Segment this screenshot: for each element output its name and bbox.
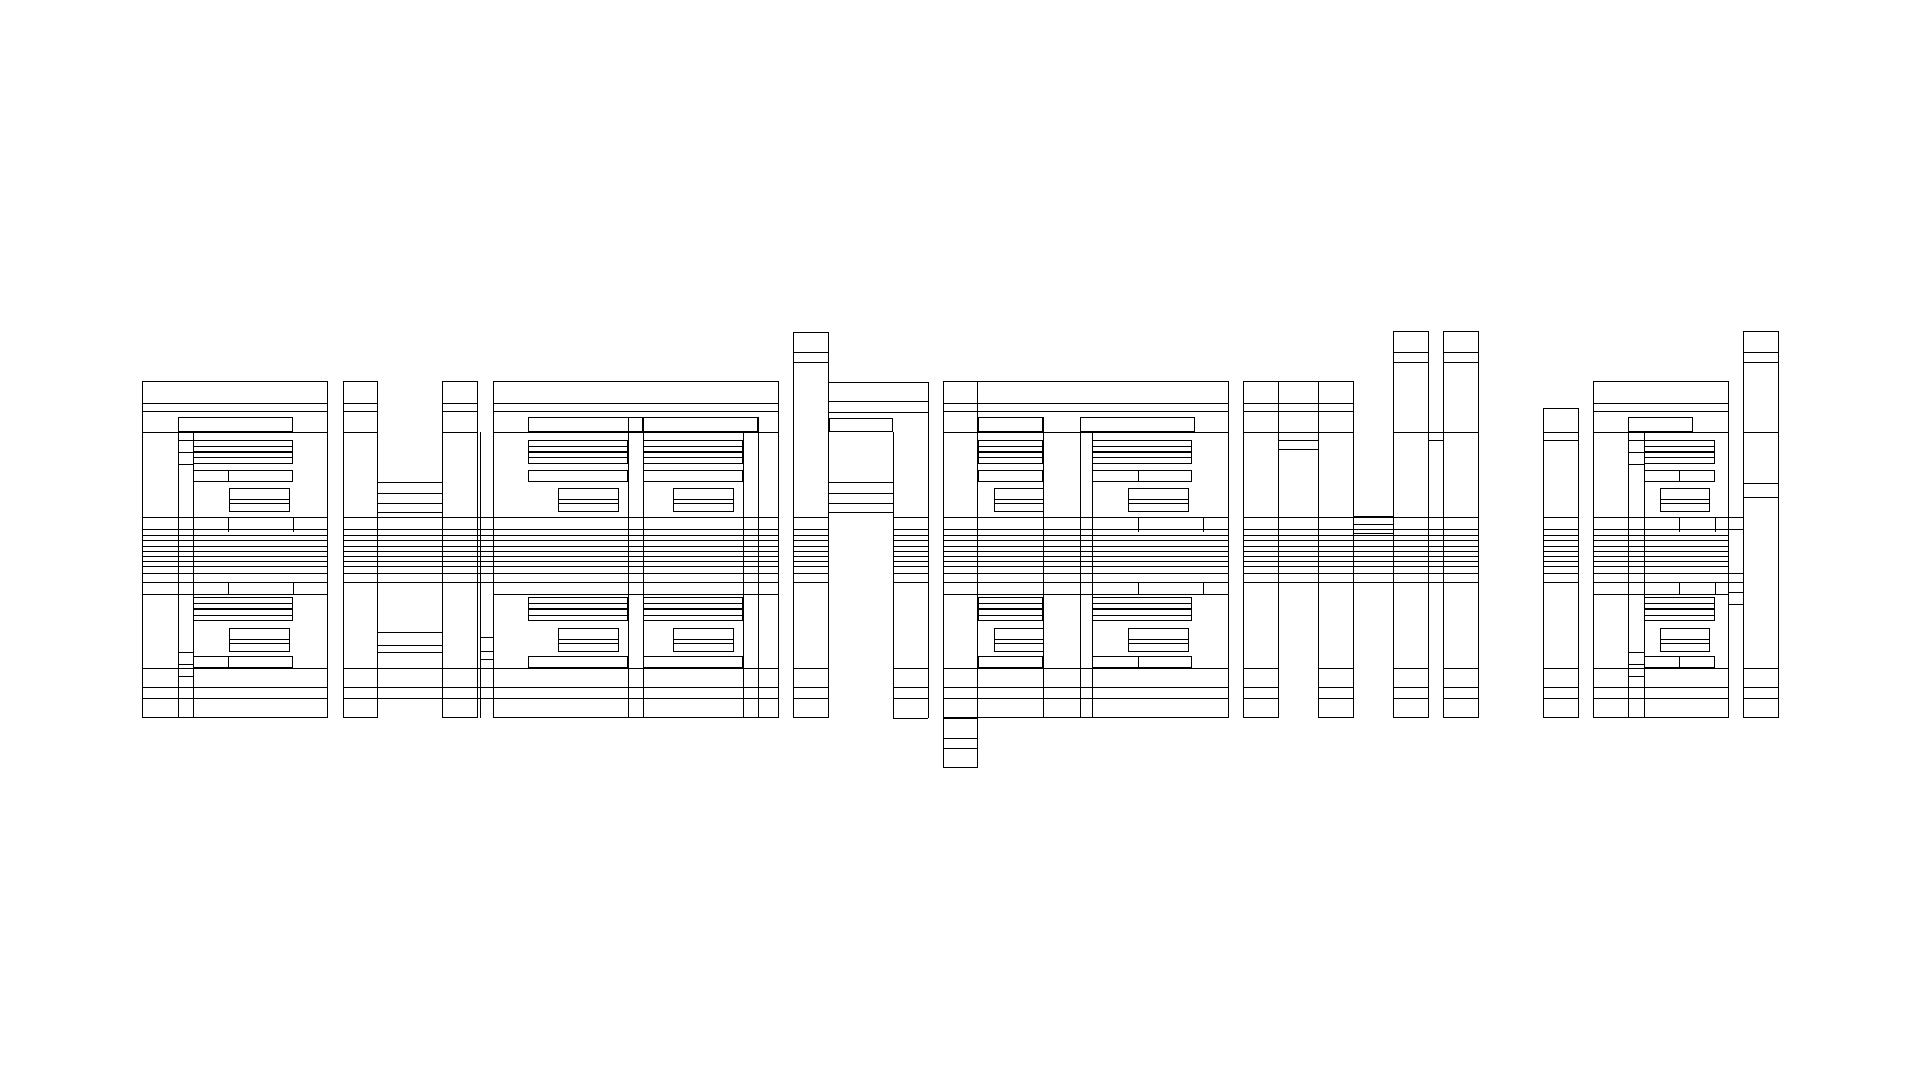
outline-rect [528, 417, 643, 432]
ascender-cells-line [1393, 362, 1429, 363]
mid-stripes-line [1243, 556, 1479, 557]
mid-stripes-line [1543, 529, 1579, 530]
outline-rect [978, 417, 1043, 432]
outline-rect [1393, 331, 1429, 718]
top-band-line [142, 403, 328, 404]
mid-stripes-line [943, 529, 1229, 530]
bottom-band-line [943, 687, 1229, 688]
h-line [558, 499, 619, 500]
mid-stripes-line [142, 529, 328, 530]
outline-rect [558, 488, 619, 512]
outline-rect [673, 488, 734, 512]
h-line [528, 457, 628, 458]
mid-stripes-line [943, 517, 1229, 518]
h-line [1628, 440, 1644, 441]
h-line [178, 452, 193, 453]
bottom-band-line [893, 668, 928, 669]
bottom-band-line [893, 687, 928, 688]
h-line [943, 748, 978, 749]
mid-stripes-line [343, 529, 779, 530]
mid-stripes-line [1243, 551, 1479, 552]
bottom-band-line [142, 668, 328, 669]
v-line [1138, 470, 1139, 482]
h-line [1660, 499, 1710, 500]
outline-rect [643, 470, 743, 482]
mid-stripes-line [1593, 551, 1729, 552]
bottom-band-line [1243, 698, 1279, 699]
h-line [994, 503, 1044, 504]
bottom-band-line [893, 698, 928, 699]
outline-rect [793, 332, 829, 718]
h-line [643, 446, 743, 447]
h-line [193, 603, 293, 604]
h-line [480, 637, 493, 638]
outline-rect [1443, 331, 1479, 718]
bottom-band-line [1543, 668, 1579, 669]
ascender-cells-line [793, 362, 829, 363]
mid-stripes-line [943, 556, 1229, 557]
mid-stripes-line [343, 540, 779, 541]
v-line [928, 382, 929, 718]
h-line [1644, 446, 1715, 447]
h-line [178, 652, 193, 653]
bottom-band-line [1593, 698, 1729, 699]
outline-rect [1743, 331, 1779, 718]
bottom-band-line [343, 668, 493, 669]
v-line [228, 470, 229, 482]
outline-rect [994, 488, 1044, 512]
arch-cells-line [829, 512, 893, 513]
v-line [893, 432, 894, 718]
mid-stripes-line [893, 551, 928, 552]
mid-stripes-line [1543, 561, 1579, 562]
h-line [1092, 457, 1192, 458]
mid-stripes-line [1593, 556, 1729, 557]
v-line [1715, 582, 1716, 594]
h-line [893, 718, 928, 719]
top-band-line [943, 432, 1229, 433]
top-band-line [1593, 411, 1729, 412]
v-line [1679, 656, 1680, 668]
outline-rect [178, 417, 293, 432]
v-line [1203, 582, 1204, 594]
bottom-band-line [943, 698, 1229, 699]
top-band-line [442, 432, 478, 433]
h-line [829, 412, 928, 413]
ascender-cells-line [1443, 352, 1479, 353]
top-band-line [1243, 432, 1354, 433]
h-line [643, 603, 743, 604]
v-line [743, 432, 744, 718]
h-line [1729, 573, 1743, 574]
h-line [378, 632, 442, 633]
mid-stripes-line [1243, 540, 1479, 541]
mid-stripes-line [793, 517, 829, 518]
h-line [1660, 643, 1710, 644]
outline-rect [193, 656, 293, 668]
outline-rect [193, 470, 293, 482]
outline-rect [943, 381, 978, 768]
outline-rect [229, 628, 290, 652]
h-line [1743, 483, 1779, 484]
bottom-band-line [343, 687, 493, 688]
top-band-line [442, 411, 478, 412]
mid-stripes-line [142, 535, 328, 536]
h-line [193, 446, 293, 447]
bottom-band-line [1318, 687, 1354, 688]
h-line [643, 457, 743, 458]
mid-stripes-line [1243, 561, 1479, 562]
h-line [1354, 524, 1393, 525]
h-line [1128, 643, 1189, 644]
outline-rect [829, 418, 893, 432]
h-line [480, 651, 493, 652]
v-line [758, 417, 759, 718]
h-line [1644, 615, 1715, 616]
mid-stripes-line [1593, 566, 1729, 567]
v-line [1679, 582, 1680, 594]
arch-cells-line [378, 512, 442, 513]
v-line [228, 656, 229, 668]
mid-stripes-line [943, 566, 1229, 567]
bottom-band-line [1593, 687, 1729, 688]
v-line [293, 582, 294, 594]
h-line [1729, 582, 1743, 583]
h-line [1092, 446, 1192, 447]
arch-cells-line [829, 493, 893, 494]
h-line [1660, 639, 1710, 640]
h-line [1628, 652, 1644, 653]
bottom-band-line [1443, 698, 1479, 699]
mid-stripes-line [1543, 535, 1579, 536]
mid-stripes-line [1243, 582, 1479, 583]
bottom-band-line [343, 698, 493, 699]
top-band-line [142, 411, 328, 412]
mid-stripes-line [343, 546, 779, 547]
outline-rect [1660, 628, 1710, 652]
mid-stripes-line [793, 535, 829, 536]
mid-stripes-line [893, 546, 928, 547]
arch-cells-line [378, 503, 442, 504]
bottom-band-line [1593, 668, 1729, 669]
v-line [1644, 432, 1645, 718]
h-line [1092, 615, 1192, 616]
outline-rect [1092, 656, 1192, 668]
h-line [1628, 664, 1644, 665]
mid-stripes-line [893, 573, 928, 574]
mid-stripes-line [1593, 517, 1729, 518]
mid-stripes-line [793, 561, 829, 562]
ascender-cells-line [1743, 362, 1779, 363]
mid-stripes-line [343, 551, 779, 552]
mid-stripes-line [793, 573, 829, 574]
outline-rect [643, 656, 743, 668]
bottom-band-line [1318, 698, 1354, 699]
h-line [994, 643, 1044, 644]
v-line [178, 417, 179, 718]
h-line [1593, 594, 1729, 595]
top-band-line [343, 403, 378, 404]
arch-cells-line [378, 482, 442, 483]
mid-stripes-line [893, 517, 928, 518]
h-line [643, 615, 743, 616]
mid-stripes-line [893, 582, 928, 583]
mid-stripes-line [1243, 535, 1479, 536]
h-line [943, 594, 1229, 595]
h-line [1128, 503, 1189, 504]
outline-rect [1644, 452, 1715, 464]
h-line [1743, 497, 1779, 498]
h-line [528, 603, 628, 604]
v-line [228, 582, 229, 594]
mid-stripes-line [1543, 546, 1579, 547]
mid-stripes-line [142, 551, 328, 552]
bottom-band-line [943, 668, 1229, 669]
outline-rect [229, 488, 290, 512]
arch-cells-line [378, 493, 442, 494]
mid-stripes-line [793, 551, 829, 552]
h-line [558, 639, 619, 640]
h-line [178, 440, 193, 441]
h-line [1393, 432, 1429, 433]
mid-stripes-line [142, 540, 328, 541]
outline-rect [643, 417, 758, 432]
mid-stripes-line [893, 561, 928, 562]
mid-stripes-line [943, 535, 1229, 536]
artwork-canvas [0, 0, 1920, 1080]
mid-stripes-line [1243, 529, 1479, 530]
h-line [673, 639, 734, 640]
mid-stripes-line [943, 546, 1229, 547]
h-line [1628, 464, 1644, 465]
bottom-band-line [1543, 687, 1579, 688]
bottom-band-line [493, 698, 779, 699]
mid-stripes-line [1543, 566, 1579, 567]
h-line [673, 503, 734, 504]
h-line [673, 499, 734, 500]
h-line [193, 457, 293, 458]
arch-cells-line [829, 503, 893, 504]
h-line [1354, 533, 1393, 534]
bottom-band-line [1318, 668, 1354, 669]
outline-rect [1128, 488, 1189, 512]
h-line [1660, 503, 1710, 504]
ascender-cells-line [793, 352, 829, 353]
mid-stripes-line [1243, 566, 1479, 567]
h-line [229, 499, 290, 500]
outline-rect [528, 470, 628, 482]
v-line [1092, 432, 1093, 718]
mid-stripes-line [893, 535, 928, 536]
bottom-band-line [493, 687, 779, 688]
h-line [829, 382, 928, 383]
h-line [1729, 592, 1743, 593]
mid-stripes-line [943, 561, 1229, 562]
h-line [1543, 432, 1579, 433]
bottom-band-line [493, 668, 779, 669]
h-line [378, 652, 442, 653]
h-line [178, 664, 193, 665]
outline-rect [978, 452, 1043, 464]
h-line [978, 457, 1043, 458]
mid-stripes-line [343, 582, 779, 583]
mid-stripes-line [943, 540, 1229, 541]
mid-stripes-line [793, 566, 829, 567]
mid-stripes-line [142, 573, 328, 574]
bottom-band-line [793, 687, 829, 688]
mid-stripes-line [1593, 582, 1729, 583]
h-line [994, 639, 1044, 640]
mid-stripes-line [1593, 535, 1729, 536]
top-band-line [442, 403, 478, 404]
h-line [229, 639, 290, 640]
v-line [628, 417, 629, 718]
h-line [943, 718, 978, 719]
h-line [378, 645, 442, 646]
outline-rect [528, 656, 628, 668]
top-band-line [493, 411, 779, 412]
mid-stripes-line [793, 529, 829, 530]
h-line [978, 603, 1043, 604]
bottom-band-line [142, 698, 328, 699]
outline-rect [1543, 408, 1579, 718]
v-line [1679, 470, 1680, 482]
bottom-band-line [1443, 668, 1479, 669]
outline-rect [1092, 452, 1192, 464]
mid-stripes-line [793, 546, 829, 547]
h-line [1429, 440, 1443, 441]
top-band-line [943, 411, 1229, 412]
v-line [1080, 417, 1081, 718]
h-line [1279, 381, 1318, 382]
h-line [1092, 603, 1192, 604]
v-line [193, 432, 194, 718]
mid-stripes-line [793, 540, 829, 541]
bottom-band-line [1393, 698, 1429, 699]
mid-stripes-line [142, 517, 328, 518]
bottom-band-line [1543, 698, 1579, 699]
mid-stripes-line [343, 556, 779, 557]
bottom-band-line [142, 687, 328, 688]
mid-stripes-line [343, 566, 779, 567]
mid-stripes-line [1593, 573, 1729, 574]
mid-stripes-line [893, 556, 928, 557]
mid-stripes-line [793, 582, 829, 583]
arch-cells-line [829, 482, 893, 483]
bottom-band-line [1243, 687, 1279, 688]
mid-stripes-line [1543, 517, 1579, 518]
top-band-line [1593, 403, 1729, 404]
h-line [1644, 603, 1715, 604]
h-line [193, 615, 293, 616]
mid-stripes-line [943, 551, 1229, 552]
mid-stripes-line [343, 573, 779, 574]
top-band-line [343, 432, 378, 433]
h-line [1279, 440, 1318, 441]
h-line [229, 643, 290, 644]
bottom-band-line [1393, 687, 1429, 688]
h-line [1128, 639, 1189, 640]
mid-stripes-line [1243, 573, 1479, 574]
h-line [994, 499, 1044, 500]
top-band-line [142, 432, 328, 433]
h-line [480, 659, 493, 660]
mid-stripes-line [1543, 582, 1579, 583]
outline-rect [528, 452, 628, 464]
h-line [1543, 440, 1579, 441]
mid-stripes-line [1593, 529, 1729, 530]
mid-stripes-line [1543, 573, 1579, 574]
bottom-band-line [1743, 668, 1779, 669]
mid-stripes-line [1543, 556, 1579, 557]
mid-stripes-line [142, 546, 328, 547]
top-band-line [493, 432, 779, 433]
mid-stripes-line [893, 540, 928, 541]
h-line [1429, 432, 1443, 433]
outline-rect [1660, 488, 1710, 512]
h-line [1628, 452, 1644, 453]
h-line [142, 594, 328, 595]
mid-stripes-line [142, 561, 328, 562]
top-band-line [943, 403, 1229, 404]
v-line [1138, 656, 1139, 668]
bottom-band-line [1443, 687, 1479, 688]
mid-stripes-line [943, 573, 1229, 574]
h-line [1279, 449, 1318, 450]
v-line [1138, 582, 1139, 594]
h-line [178, 464, 193, 465]
v-line [480, 432, 481, 718]
mid-stripes-line [1243, 517, 1479, 518]
h-line [1443, 432, 1479, 433]
outline-rect [1092, 470, 1192, 482]
ascender-cells-line [1393, 352, 1429, 353]
top-band-line [493, 403, 779, 404]
h-line [943, 738, 978, 739]
bottom-band-line [1743, 687, 1779, 688]
h-line [1729, 604, 1743, 605]
mid-stripes-line [893, 529, 928, 530]
h-line [1729, 529, 1743, 530]
mid-stripes-line [343, 561, 779, 562]
outline-rect [643, 452, 743, 464]
h-line [528, 615, 628, 616]
h-line [1128, 499, 1189, 500]
outline-rect [558, 628, 619, 652]
h-line [978, 615, 1043, 616]
top-band-line [1243, 411, 1354, 412]
h-line [558, 503, 619, 504]
h-line [1628, 676, 1644, 677]
outline-rect [978, 470, 1043, 482]
top-band-line [343, 411, 378, 412]
h-line [673, 643, 734, 644]
h-line [493, 594, 779, 595]
mid-stripes-line [142, 566, 328, 567]
outline-rect [193, 452, 293, 464]
bottom-band-line [1743, 698, 1779, 699]
outline-rect [978, 656, 1043, 668]
h-line [528, 446, 628, 447]
outline-rect [1628, 417, 1693, 432]
bottom-band-line [793, 668, 829, 669]
v-line [643, 417, 644, 718]
h-line [558, 643, 619, 644]
ascender-cells-line [1443, 362, 1479, 363]
h-line [1743, 432, 1779, 433]
v-line [1043, 417, 1044, 718]
mid-stripes-line [343, 517, 779, 518]
